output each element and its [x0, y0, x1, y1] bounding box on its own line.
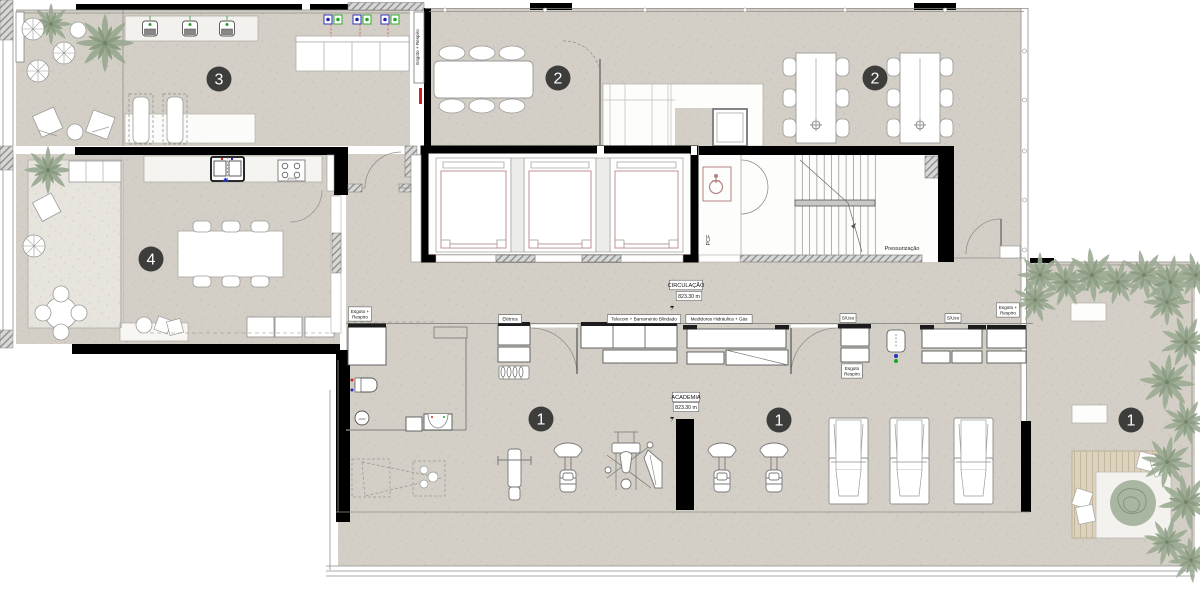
svg-text:Respiro: Respiro: [1000, 311, 1016, 316]
svg-text:1: 1: [537, 412, 546, 429]
svg-text:Telecom + Barramento Blindado: Telecom + Barramento Blindado: [611, 317, 677, 322]
svg-text:ACADEMIA: ACADEMIA: [671, 395, 700, 401]
svg-text:823.30 m: 823.30 m: [678, 294, 700, 300]
svg-text:Elétrica: Elétrica: [502, 317, 518, 322]
svg-text:823.30 m: 823.30 m: [675, 405, 697, 411]
svg-text:4: 4: [147, 252, 156, 269]
svg-text:2: 2: [554, 71, 563, 88]
svg-text:Pressurização: Pressurização: [885, 246, 920, 252]
svg-text:3: 3: [215, 72, 224, 89]
svg-text:Esgoto +: Esgoto +: [999, 305, 1018, 310]
svg-text:1: 1: [1127, 413, 1136, 430]
svg-text:LIXO: LIXO: [359, 417, 367, 421]
svg-text:S/Uso: S/Uso: [947, 316, 960, 321]
svg-text:2: 2: [871, 71, 880, 88]
svg-text:Esgoto: Esgoto: [845, 366, 860, 371]
svg-text:PCF: PCF: [706, 234, 712, 246]
svg-text:CIRCULAÇÃO: CIRCULAÇÃO: [668, 282, 705, 289]
svg-text:Medidores Hidráulica + Gás: Medidores Hidráulica + Gás: [691, 317, 749, 322]
svg-text:S/Uso: S/Uso: [842, 316, 855, 321]
svg-text:Esgoto +: Esgoto +: [351, 309, 370, 314]
svg-text:Esgoto + Respiro: Esgoto + Respiro: [415, 29, 420, 65]
svg-text:Respiro: Respiro: [352, 315, 368, 320]
svg-text:1: 1: [775, 413, 784, 430]
svg-text:Respiro: Respiro: [844, 372, 860, 377]
